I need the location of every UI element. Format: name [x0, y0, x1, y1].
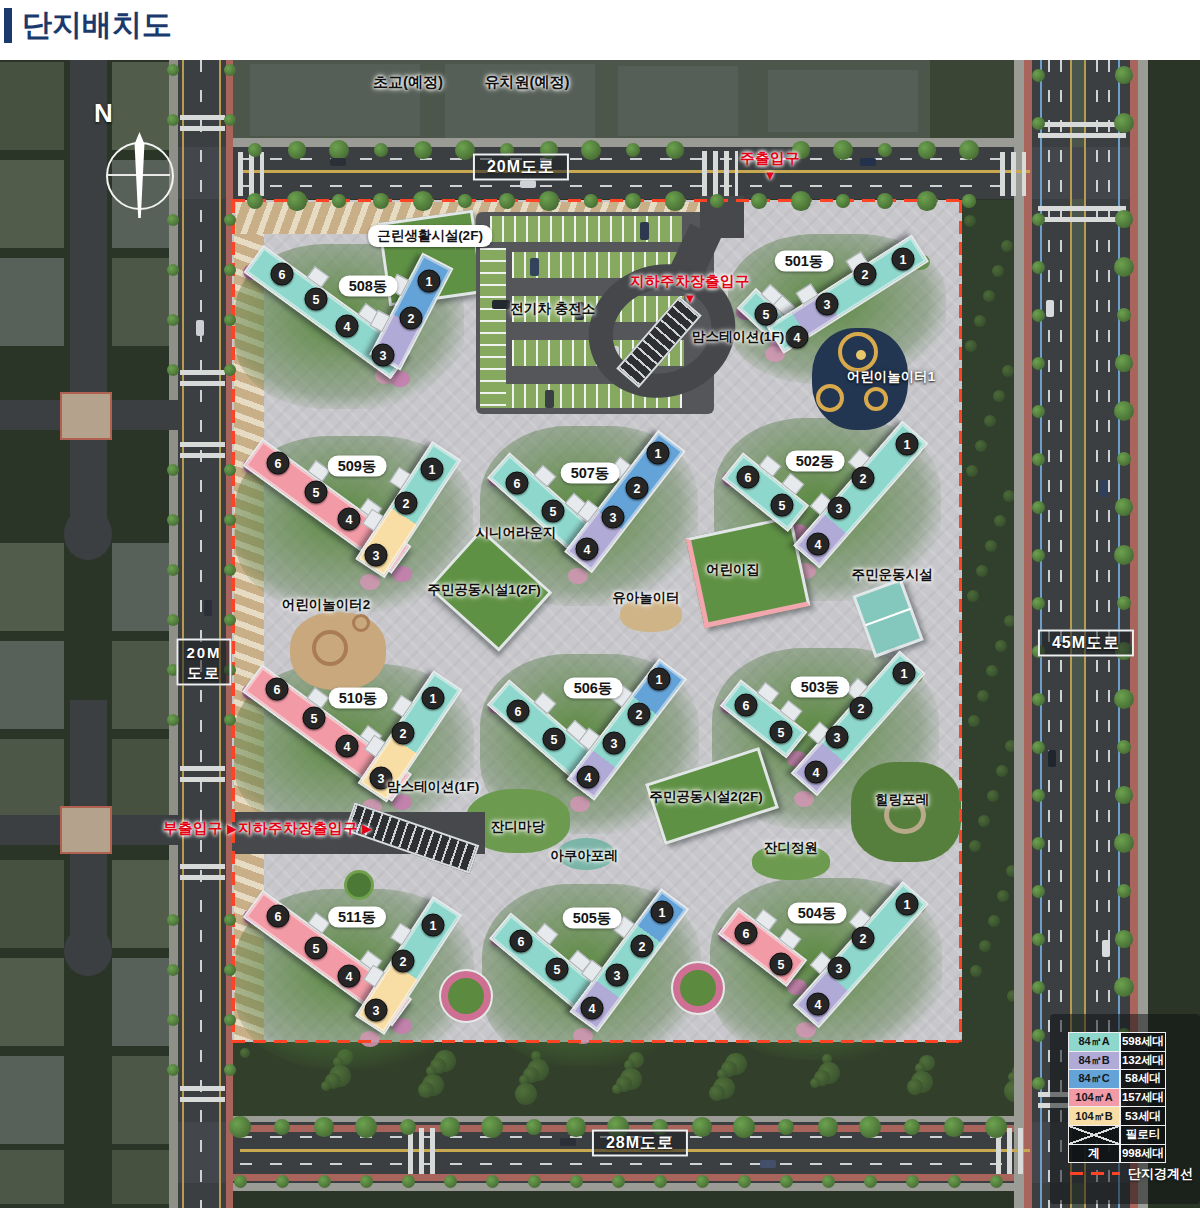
entrance-label: 부출입구 [163, 819, 223, 838]
tree-icon [1032, 789, 1045, 802]
site-parcel [112, 739, 170, 827]
road-20m-top [185, 147, 1035, 199]
site-parcel [0, 1150, 64, 1204]
legend-swatch: 84㎡C [1068, 1069, 1120, 1089]
car [760, 1160, 776, 1168]
tree-icon [985, 1116, 1007, 1138]
tree-icon [1115, 498, 1133, 516]
legend-swatch: 84㎡B [1068, 1051, 1120, 1071]
tree-icon [1032, 453, 1045, 466]
sidewalk [169, 60, 178, 1208]
tree-canopy [612, 1084, 622, 1094]
entrance-marker: 주출입구▼ [740, 149, 800, 183]
tree-icon [1115, 930, 1133, 948]
unit-number-badge: 2 [631, 935, 654, 958]
tree-icon [1115, 786, 1133, 804]
tree-canopy [984, 415, 996, 427]
entrance-marker: 부출입구▶ [163, 819, 237, 838]
tree-icon [1032, 741, 1045, 754]
tree-canopy [976, 565, 988, 577]
flower-circle [673, 963, 723, 1013]
flower-shrub [796, 1022, 816, 1038]
unit-number-badge: 2 [852, 467, 875, 490]
road-label-28m: 28M도로 [592, 1130, 688, 1157]
tree-icon [167, 214, 179, 226]
entrance-arrow-icon: ▼ [764, 168, 777, 183]
tree-icon [1032, 309, 1045, 322]
tree-icon [570, 1175, 583, 1188]
tree-canopy [996, 765, 1008, 777]
legend-value: 132세대 [1120, 1051, 1166, 1071]
car [1048, 750, 1056, 767]
unit-number-badge: 3 [816, 293, 839, 316]
unit-number-badge: 3 [372, 344, 395, 367]
tree-icon [167, 464, 179, 476]
tree-icon [276, 1175, 289, 1188]
tree-canopy [988, 915, 1000, 927]
unit-number-badge: 6 [737, 466, 760, 489]
site-parcel [0, 739, 64, 827]
site-parcel [112, 258, 170, 346]
tree-icon [526, 1119, 542, 1135]
building-name-label: 510동 [329, 688, 388, 709]
unit-number-badge: 6 [266, 678, 289, 701]
tree-icon [224, 214, 236, 226]
tree-canopy [983, 290, 995, 302]
unit-number-badge: 5 [770, 953, 793, 976]
road-label-20m-west-line1: 20M [186, 643, 221, 663]
unit-number-badge: 4 [807, 533, 830, 556]
building-name-label: 502동 [786, 451, 845, 472]
tree-icon [167, 264, 179, 276]
unit-number-badge: 4 [336, 735, 359, 758]
legend-swatch [1068, 1125, 1120, 1145]
unit-number-badge: 4 [786, 326, 809, 349]
lane-line [240, 185, 1020, 187]
flower-shrub [360, 1031, 380, 1047]
tree-icon [1032, 837, 1045, 850]
tree-canopy [975, 440, 987, 452]
site-parcel [112, 641, 170, 729]
tree-icon [1032, 117, 1045, 130]
parked-car [530, 258, 539, 276]
entrance-marker: 지하주차장출입구▼ [630, 272, 750, 306]
tree-icon [539, 191, 558, 210]
unit-number-badge: 3 [828, 957, 851, 980]
tree-icon [167, 614, 179, 626]
tree-icon [332, 194, 345, 207]
tree-canopy [997, 890, 1009, 902]
entrance-arrow-icon: ▶ [362, 821, 372, 836]
building-name-label: 505동 [563, 908, 622, 929]
unit-number-badge: 4 [336, 315, 359, 338]
unit-number-badge: 1 [651, 901, 674, 924]
tree-icon [402, 1175, 415, 1188]
tree-canopy [978, 815, 990, 827]
legend-swatch: 계 [1068, 1144, 1120, 1164]
tree-icon [224, 264, 236, 276]
tree-icon [1032, 693, 1045, 706]
entrance-marker: 지하주차장출입구▶ [238, 819, 372, 838]
site-parcel [0, 160, 64, 248]
facility-label: 주민운동시설 [852, 566, 933, 584]
car [860, 158, 876, 166]
tree-icon [566, 1117, 585, 1136]
unit-number-badge: 6 [506, 472, 529, 495]
tree-icon [167, 964, 179, 976]
building-name-label: 507동 [561, 463, 620, 484]
tree-canopy [969, 840, 981, 852]
tree-canopy [418, 1082, 434, 1098]
facility-label: 잔디정원 [764, 839, 818, 857]
tree-icon [864, 1175, 877, 1188]
tree-icon [1032, 405, 1045, 418]
tree-icon [1032, 261, 1045, 274]
site-parcel [768, 70, 918, 132]
crosswalk [180, 370, 225, 390]
tree-canopy [986, 665, 998, 677]
legend-value: 157세대 [1120, 1088, 1166, 1108]
unit-number-badge: 1 [896, 433, 919, 456]
tree-icon [224, 364, 236, 376]
tree-icon [360, 1175, 373, 1188]
unit-number-badge: 1 [647, 442, 670, 465]
tree-icon [224, 564, 236, 576]
crosswalk [180, 1086, 225, 1106]
tree-icon [877, 193, 893, 209]
unit-number-badge: 4 [576, 538, 599, 561]
building-name-label: 504동 [788, 903, 847, 924]
unit-number-badge: 2 [626, 477, 649, 500]
crosswalk [238, 152, 264, 196]
tree-icon [696, 1175, 709, 1188]
facility-label: 어린이놀이터1 [847, 368, 936, 386]
tree-icon [751, 193, 767, 209]
facility-label: 아쿠아포레 [550, 847, 618, 865]
car [204, 600, 212, 616]
site-parcel [112, 543, 170, 631]
unit-number-badge: 1 [648, 668, 671, 691]
legend-swatch: 104㎡B [1068, 1106, 1120, 1126]
tree-icon [1032, 213, 1045, 226]
tree-icon [499, 193, 515, 209]
site-parcel [0, 543, 64, 631]
facility-label: 주민공동시설1(2F) [427, 581, 540, 599]
unit-number-badge: 3 [602, 506, 625, 529]
flower-shrub [568, 568, 588, 584]
unit-number-badge: 4 [581, 997, 604, 1020]
crosswalk [180, 766, 225, 788]
tree-canopy [321, 1081, 331, 1091]
road-culdesac [64, 926, 112, 976]
tree-icon [400, 1119, 416, 1135]
crosswalk [1038, 206, 1126, 226]
site-plan-page: 단지배치도 N 20M도로 45M도로 28M도로 20M 도로 6541235… [0, 0, 1200, 1208]
unit-number-badge: 6 [267, 452, 290, 475]
tree-icon [665, 191, 684, 210]
tree-icon [1032, 357, 1045, 370]
tree-icon [224, 314, 236, 326]
tree-icon [1032, 549, 1045, 562]
tree-icon [1032, 501, 1045, 514]
facility-label: 시니어라운지 [476, 524, 557, 542]
facility-label: 전기차 충전소 [511, 300, 596, 318]
unit-number-badge: 1 [421, 458, 444, 481]
tree-canopy [968, 715, 980, 727]
bike-lane [1024, 60, 1032, 1208]
tree-icon [440, 1117, 459, 1136]
unit-number-badge: 2 [392, 950, 415, 973]
tree-canopy [1002, 365, 1014, 377]
tree-icon [738, 1175, 751, 1188]
crosswalk [702, 151, 738, 197]
complex-boundary-line [232, 1040, 962, 1043]
building-name-label: 511동 [328, 907, 386, 928]
unit-number-badge: 3 [828, 497, 851, 520]
tree-icon [167, 714, 179, 726]
tree-icon [528, 1175, 541, 1188]
tree-icon [224, 1014, 236, 1026]
tree-icon [224, 514, 236, 526]
tree-icon [224, 64, 236, 76]
tree-icon [413, 191, 432, 210]
parked-car [545, 390, 554, 408]
tree-icon [167, 314, 179, 326]
unit-number-badge: 1 [893, 662, 916, 685]
playground-ring [312, 630, 348, 666]
complex-boundary-line [959, 200, 962, 1042]
tree-icon [833, 140, 853, 160]
tree-canopy [965, 340, 977, 352]
unit-number-badge: 2 [852, 927, 875, 950]
unit-number-badge: 1 [422, 687, 445, 710]
unit-number-badge: 5 [770, 721, 793, 744]
tree-icon [274, 1119, 290, 1135]
tree-canopy [709, 1085, 725, 1101]
car [1100, 480, 1108, 497]
tree-canopy [240, 1048, 250, 1058]
entrance-arrow-icon: ▼ [684, 291, 697, 306]
facility-label: 맘스테이션(1F) [387, 778, 479, 796]
crosswalk [180, 115, 225, 135]
tree-canopy [964, 215, 976, 227]
tree-icon [791, 191, 810, 210]
unit-number-badge: 5 [305, 937, 328, 960]
site-parcel [112, 860, 170, 948]
tree-icon [584, 194, 597, 207]
entrance-label: 지하주차장출입구 [630, 272, 750, 291]
tree-icon [612, 1175, 625, 1188]
tree-canopy [966, 465, 978, 477]
tree-icon [818, 1117, 837, 1136]
crosswalk [1000, 152, 1026, 196]
tree-icon [414, 141, 431, 158]
tree-icon [666, 141, 683, 158]
facility-label: 근린생활시설(2F) [368, 225, 492, 247]
tree-icon [654, 1175, 667, 1188]
entrance-label: 지하주차장출입구 [238, 819, 358, 838]
site-parcel [0, 860, 64, 948]
site-context-label: 초교(예정) [373, 73, 443, 92]
tree-icon [692, 1117, 711, 1136]
tree-icon [822, 1175, 835, 1188]
tree-icon [229, 1116, 251, 1138]
unit-number-badge: 5 [542, 500, 565, 523]
facility-label: 주민공동시설2(2F) [649, 788, 762, 806]
building-name-label: 509동 [328, 456, 387, 477]
compass-north-label: N [94, 98, 113, 129]
legend-value: 53세대 [1120, 1106, 1166, 1126]
tree-icon [167, 114, 179, 126]
lane-line [219, 60, 221, 1208]
legend-swatch: 104㎡A [1068, 1088, 1120, 1108]
car [1102, 940, 1110, 957]
tree-icon [990, 1175, 1003, 1188]
unit-number-badge: 2 [400, 307, 423, 330]
unit-number-badge: 2 [854, 263, 877, 286]
playground-dot [856, 350, 866, 360]
tree-icon [318, 1175, 331, 1188]
tree-icon [224, 714, 236, 726]
unit-number-badge: 5 [546, 958, 569, 981]
tree-icon [1032, 981, 1045, 994]
unit-number-badge: 1 [422, 914, 445, 937]
tree-icon [780, 1175, 793, 1188]
tree-icon [1115, 66, 1133, 84]
tree-icon [906, 1175, 919, 1188]
tree-icon [1115, 210, 1133, 228]
tree-icon [1115, 354, 1133, 372]
site-parcel [0, 641, 64, 729]
unit-number-badge: 2 [392, 722, 415, 745]
car [330, 158, 346, 166]
page-header: 단지배치도 [0, 0, 1200, 60]
tree-icon [710, 194, 723, 207]
building-name-label: 501동 [775, 251, 834, 272]
road-label-20m: 20M도로 [473, 154, 569, 181]
unit-number-badge: 4 [805, 761, 828, 784]
tree-icon [458, 194, 471, 207]
lane-line [182, 60, 184, 1208]
unit-number-badge: 4 [807, 993, 830, 1016]
tree-icon [959, 140, 979, 160]
tree-icon [234, 1175, 247, 1188]
unit-number-badge: 6 [271, 263, 294, 286]
playground-ring [816, 384, 844, 412]
unit-number-badge: 1 [896, 893, 919, 916]
tree-icon [625, 193, 641, 209]
tree-icon [1032, 933, 1045, 946]
playground-ring [352, 614, 370, 632]
flower-circle [441, 971, 491, 1021]
site-plan-map: N 20M도로 45M도로 28M도로 20M 도로 654123508동123… [0, 60, 1200, 1208]
parking-stalls [480, 248, 506, 408]
building-name-label: 506동 [564, 678, 623, 699]
tree-icon [836, 194, 849, 207]
unit-number-badge: 1 [418, 270, 441, 293]
lane-line [240, 1163, 1020, 1165]
tree-icon [581, 140, 601, 160]
tree-icon [904, 1119, 920, 1135]
unit-number-badge: 4 [338, 508, 361, 531]
garden-circle [344, 870, 374, 900]
facility-label: 어린이집 [706, 561, 760, 579]
legend-boundary-dash [1070, 1172, 1120, 1175]
tree-icon [948, 1175, 961, 1188]
tree-icon [918, 141, 935, 158]
tree-icon [1032, 1077, 1045, 1090]
tree-canopy [992, 265, 1004, 277]
tree-canopy [974, 315, 986, 327]
road-label-20m-west-line2: 도로 [186, 662, 221, 682]
unit-number-badge: 2 [395, 492, 418, 515]
tree-icon [224, 1064, 236, 1076]
crosswalk [180, 442, 225, 462]
road-label-20m-west: 20M 도로 [176, 639, 231, 686]
car [1046, 300, 1054, 317]
tree-icon [224, 914, 236, 926]
unit-number-badge: 4 [577, 766, 600, 789]
building-name-label: 508동 [339, 276, 398, 297]
car [196, 320, 204, 336]
parked-car [640, 222, 649, 240]
playground-ring [864, 387, 888, 411]
tree-icon [167, 1064, 179, 1076]
crosswalk [180, 864, 225, 886]
unit-number-badge: 6 [267, 905, 290, 928]
tree-canopy [810, 1078, 820, 1088]
tree-icon [444, 1175, 457, 1188]
intersection-box [60, 806, 112, 854]
site-parcel [0, 62, 64, 150]
facility-label: 잔디마당 [491, 818, 545, 836]
intersection [1032, 147, 1130, 199]
tree-canopy [995, 640, 1007, 652]
parking-stalls [490, 216, 682, 242]
unit-number-badge: 3 [365, 999, 388, 1022]
sidewalk [185, 138, 1035, 147]
unit-number-badge: 5 [771, 494, 794, 517]
legend-value: 필로티 [1120, 1125, 1166, 1145]
tree-icon [1032, 597, 1045, 610]
tree-icon [167, 564, 179, 576]
intersection-box [60, 392, 112, 440]
tree-icon [287, 191, 306, 210]
compass-icon: N [106, 142, 174, 210]
tree-icon [733, 1116, 755, 1138]
tree-icon [481, 1116, 503, 1138]
tree-canopy [967, 590, 979, 602]
tree-icon [247, 193, 263, 209]
lane-line [200, 60, 202, 1208]
tree-icon [778, 1119, 794, 1135]
tree-canopy [985, 540, 997, 552]
entrance-label: 주출입구 [740, 149, 800, 168]
site-parcel [618, 66, 738, 136]
tree-icon [167, 514, 179, 526]
lane-line [240, 170, 1030, 173]
entrance-arrow-icon: ▶ [227, 821, 237, 836]
site-parcel [0, 958, 64, 1046]
unit-number-badge: 4 [338, 965, 361, 988]
tree-canopy [977, 690, 989, 702]
tree-canopy [994, 515, 1006, 527]
legend-value: 598세대 [1120, 1032, 1166, 1052]
tree-icon [1032, 69, 1045, 82]
unit-number-badge: 1 [892, 248, 915, 271]
tree-icon [224, 114, 236, 126]
tree-canopy [987, 790, 999, 802]
